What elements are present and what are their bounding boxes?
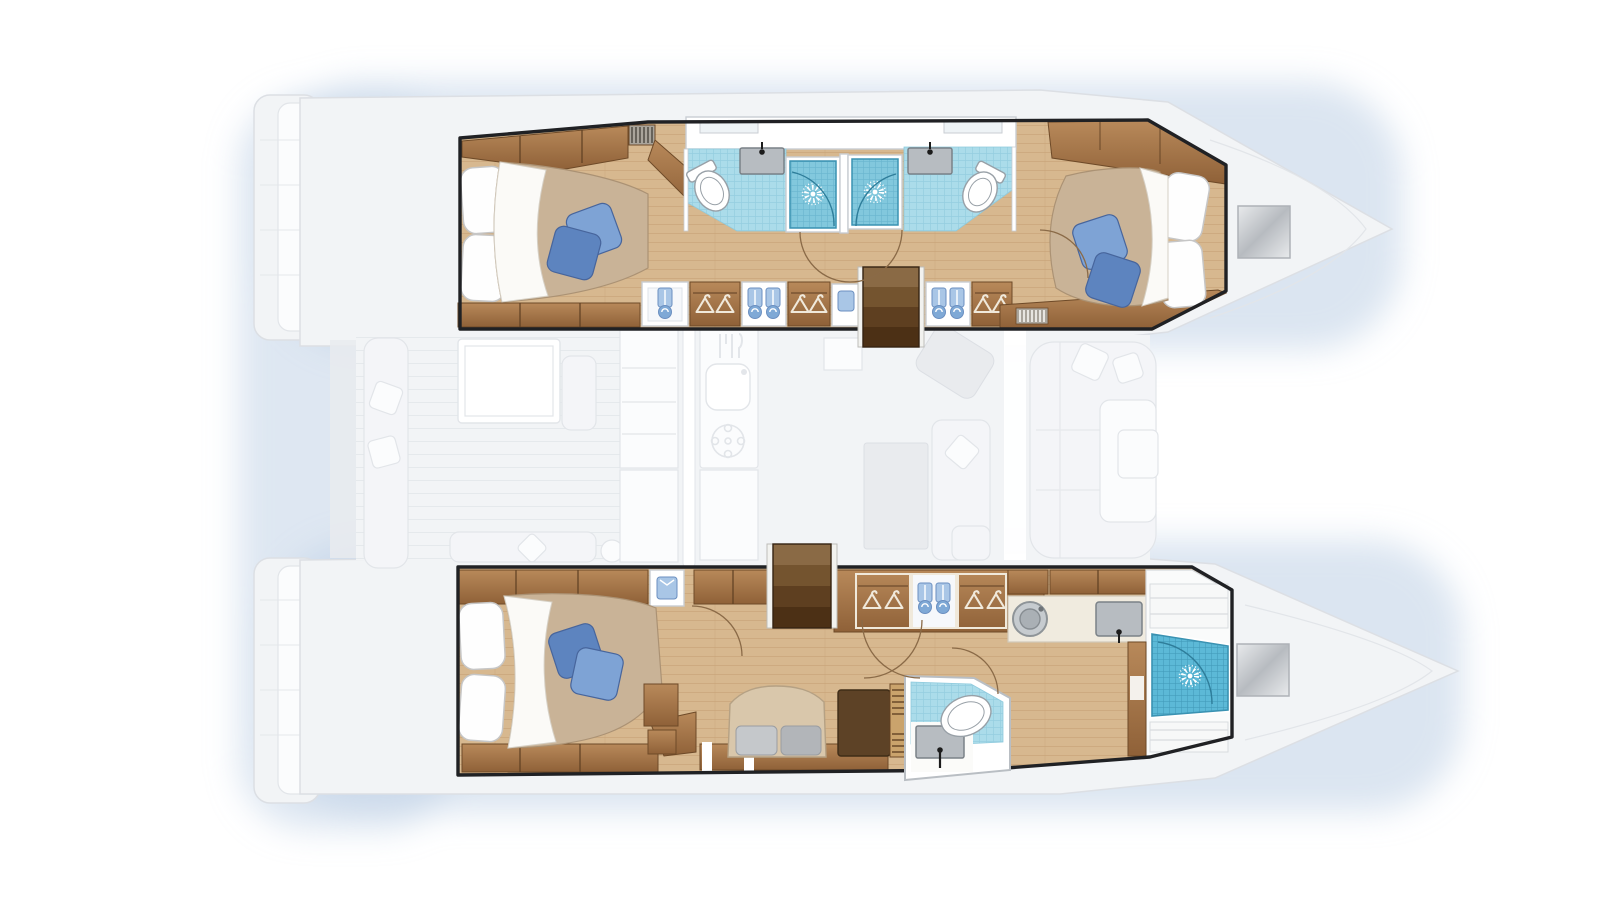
nightstand <box>644 684 678 726</box>
forward-cockpit-faded <box>1030 342 1158 558</box>
aft-guest-bed <box>460 162 648 302</box>
towel-locker <box>642 282 688 326</box>
shower-stall-aft <box>786 157 840 232</box>
galley-lower <box>700 470 758 560</box>
folded-shirt-cubby <box>650 570 684 606</box>
catamaran-floorplan-canvas <box>0 0 1600 915</box>
bathroom-window <box>944 121 1002 133</box>
sofa-cushion <box>781 726 821 755</box>
companionway-stairs-bottom <box>767 544 837 628</box>
galley-faucet <box>741 369 747 375</box>
chart-table <box>824 338 862 370</box>
vanity-upper-cabinet <box>1008 570 1048 594</box>
linen-cubby <box>832 284 860 326</box>
towel-icon <box>932 288 946 319</box>
dinette-table <box>864 443 928 549</box>
louver-vent-icon <box>629 125 655 145</box>
cabinet-niche <box>1130 676 1144 700</box>
nightstand <box>648 730 676 754</box>
hull-side-locker <box>462 744 658 772</box>
hanger-locker <box>690 282 740 326</box>
white-pillow <box>458 674 506 743</box>
white-pillow <box>458 602 505 670</box>
bed-foot-locker <box>458 303 640 327</box>
cockpit-bench-right <box>562 356 596 430</box>
towel-icon <box>950 288 964 319</box>
towel-locker <box>742 282 786 326</box>
dark-side-cabinet <box>838 690 890 756</box>
owner-sofa <box>728 686 826 757</box>
towel-icon <box>658 288 672 319</box>
deck-hatch-bottom <box>1237 644 1289 696</box>
washer-icon <box>1013 602 1047 636</box>
salon-bench-small <box>952 526 990 560</box>
bathroom-wall <box>1012 147 1016 231</box>
salon-door-walkway <box>1004 330 1026 560</box>
blue-pillow <box>569 646 625 702</box>
owner-toilet-room <box>905 676 1010 780</box>
louver-vent-icon <box>1016 308 1048 324</box>
galley-faded <box>620 326 758 568</box>
sofa-cushion <box>736 726 777 755</box>
cockpit-table <box>458 339 560 423</box>
top-hull-interior <box>458 117 1226 347</box>
deck-hatch-top <box>1238 206 1290 258</box>
towel-locker <box>926 282 970 326</box>
hanger-locker <box>788 282 830 326</box>
galley-post <box>683 326 695 568</box>
towel-locker <box>912 574 956 628</box>
shower-shelves <box>1150 584 1228 628</box>
floorplan-drawing <box>0 0 1600 915</box>
locker-gap <box>702 742 712 772</box>
fwd-guest-bed <box>1050 168 1211 310</box>
towel-icon <box>936 583 950 614</box>
towel-icon <box>748 288 762 319</box>
towel-icon <box>766 288 780 319</box>
galley-fridge <box>620 470 678 562</box>
shower-divider-wall <box>840 154 848 233</box>
galley-counter-left <box>620 330 678 468</box>
aft-crossbeam <box>330 340 356 558</box>
vanity-area <box>1008 570 1146 643</box>
bottom-hull-interior <box>458 544 1232 780</box>
bathroom-wall <box>684 149 688 231</box>
towel-icon <box>918 583 932 614</box>
shower-stall-fwd <box>848 155 902 229</box>
forward-console <box>1118 430 1158 478</box>
